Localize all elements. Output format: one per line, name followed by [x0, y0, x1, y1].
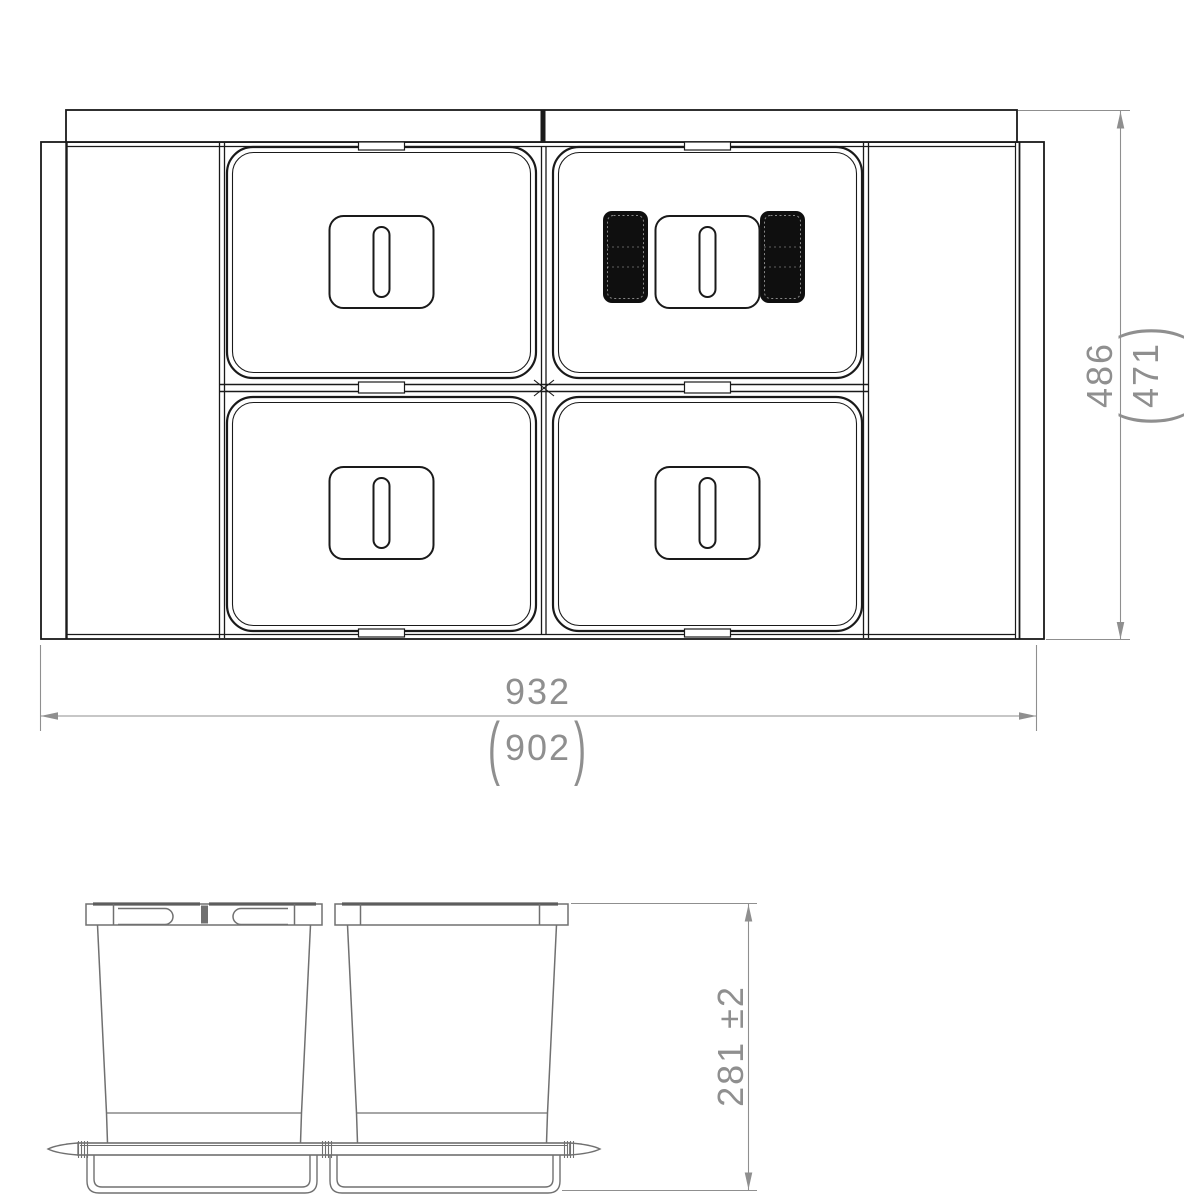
dim-width-alt-label: (902): [485, 730, 591, 766]
bin-top-left: [227, 147, 536, 378]
bucket-right-rim: [335, 904, 568, 925]
dim-width-label: 932: [505, 674, 571, 710]
plan-view: [41, 110, 1044, 639]
base-trays: [87, 1155, 560, 1193]
front-elevation-view: [48, 904, 600, 1193]
lid-pad-right: [760, 211, 805, 303]
dim-depth-label: 486: [1082, 342, 1118, 408]
bin-bottom-right: [553, 397, 862, 631]
drawer-frame: [41, 142, 1044, 639]
rim-latch: [201, 906, 208, 924]
dim-depth-alt-label: (471): [1128, 322, 1164, 428]
dim-bin-height-label: 281 ±2: [713, 985, 749, 1107]
mounting-rail: [48, 1141, 600, 1158]
bin-top-right: [553, 147, 862, 378]
technical-drawing-canvas: [0, 0, 1200, 1200]
lid-handle-slot: [374, 478, 390, 548]
bucket-right: [335, 904, 568, 1143]
lid-handle-slot: [700, 227, 716, 297]
bucket-left: [86, 904, 322, 1143]
front-rail-divider: [541, 110, 546, 142]
lid-handle-slot: [700, 478, 716, 548]
lid-handle-slot: [374, 227, 390, 297]
rail-tip-right: [570, 1143, 600, 1155]
technical-drawing-page: 932 (902) 486 (471) 281 ±2: [0, 0, 1200, 1200]
bin-bottom-left: [227, 397, 536, 631]
lid-pad-left: [603, 211, 648, 303]
rail-tip-left: [48, 1143, 78, 1155]
